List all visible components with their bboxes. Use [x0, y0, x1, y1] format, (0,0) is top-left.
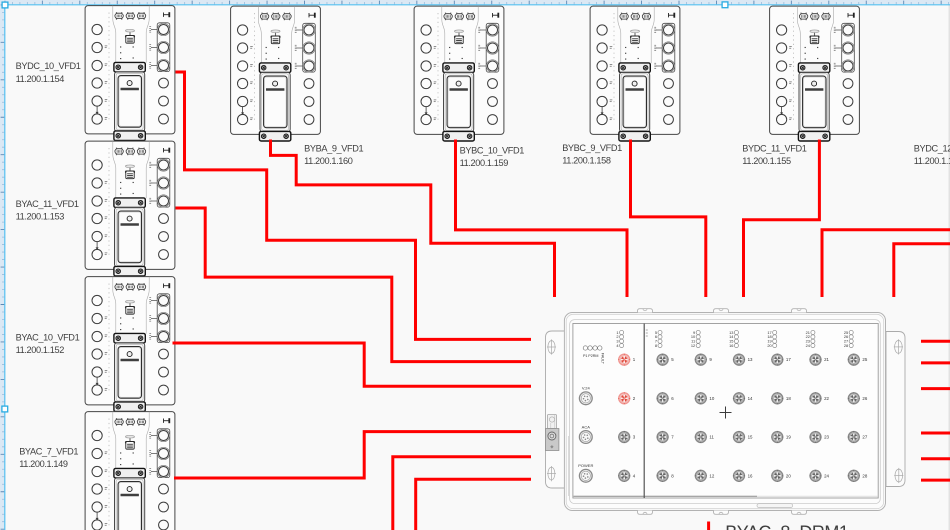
svg-text:8: 8 — [655, 343, 657, 348]
svg-text:21: 21 — [824, 357, 829, 362]
svg-text:19: 19 — [786, 435, 791, 440]
svg-text:28: 28 — [844, 343, 848, 348]
svg-text:14: 14 — [748, 396, 753, 401]
svg-text:25: 25 — [862, 357, 867, 362]
svg-text:V.24: V.24 — [582, 386, 591, 391]
svg-text:28: 28 — [862, 473, 867, 478]
svg-text:P1: P1 — [583, 354, 588, 358]
svg-text:16: 16 — [729, 343, 733, 348]
svg-text:RM: RM — [593, 354, 599, 358]
svg-text:24: 24 — [824, 473, 829, 478]
svg-text:17: 17 — [786, 357, 791, 362]
svg-text:POWER: POWER — [578, 463, 593, 468]
svg-text:12: 12 — [709, 473, 714, 478]
svg-text:26: 26 — [862, 396, 867, 401]
svg-text:FAULT: FAULT — [601, 353, 605, 365]
svg-text:22: 22 — [824, 396, 829, 401]
svg-text:10: 10 — [709, 396, 714, 401]
svg-text:12: 12 — [691, 343, 695, 348]
svg-text:13: 13 — [748, 357, 753, 362]
svg-text:BYAC_8_DRM1: BYAC_8_DRM1 — [725, 523, 849, 530]
svg-text:16: 16 — [748, 473, 753, 478]
svg-text:ACA: ACA — [582, 424, 591, 429]
svg-text:20: 20 — [786, 473, 791, 478]
svg-text:18: 18 — [786, 396, 791, 401]
svg-text:27: 27 — [862, 435, 867, 440]
svg-text:23: 23 — [824, 435, 829, 440]
svg-text:11: 11 — [709, 435, 714, 440]
svg-text:15: 15 — [748, 435, 753, 440]
